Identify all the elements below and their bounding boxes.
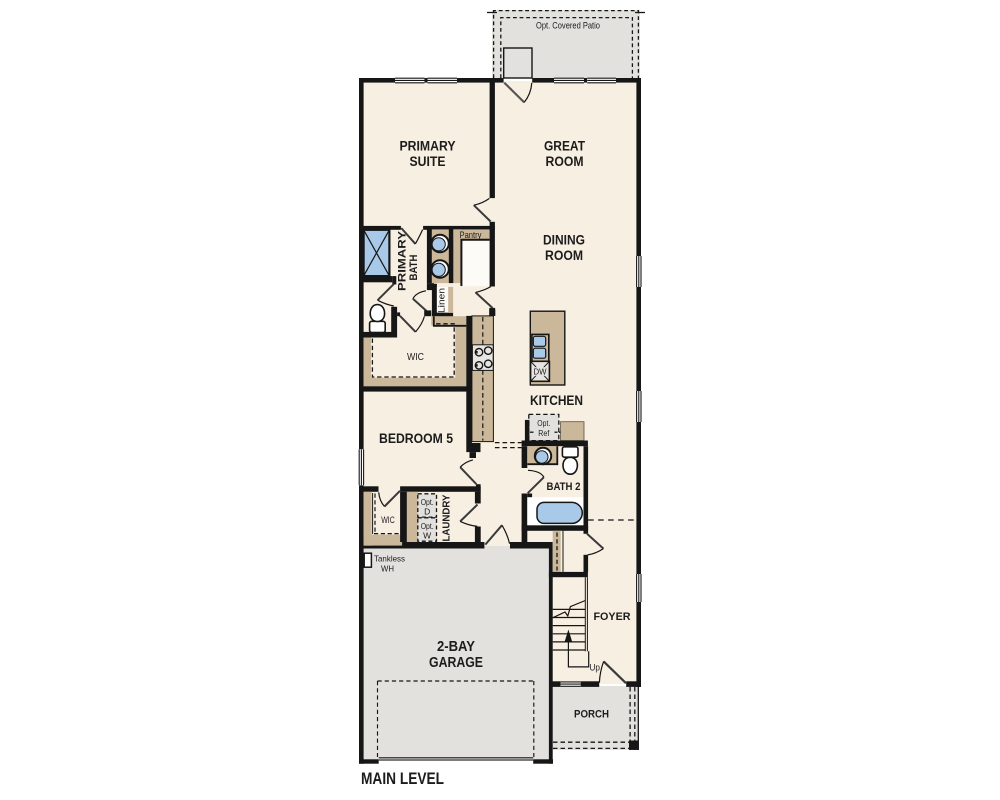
svg-text:Linen: Linen (437, 288, 448, 313)
svg-text:WIC: WIC (407, 352, 424, 363)
svg-text:WIC: WIC (381, 515, 395, 525)
svg-text:PRIMARY: PRIMARY (397, 231, 409, 291)
svg-text:Tankless: Tankless (374, 554, 405, 564)
svg-text:D: D (424, 507, 430, 517)
svg-text:Opt.: Opt. (537, 418, 550, 428)
svg-text:PRIMARY: PRIMARY (400, 139, 456, 154)
svg-text:KITCHEN: KITCHEN (530, 393, 583, 408)
svg-text:DINING: DINING (543, 233, 585, 248)
svg-text:Opt.: Opt. (421, 497, 434, 507)
svg-text:WH: WH (381, 564, 394, 574)
svg-text:Opt.: Opt. (421, 521, 434, 531)
svg-text:Pantry: Pantry (460, 230, 483, 240)
svg-text:ROOM: ROOM (545, 248, 583, 263)
svg-text:2-BAY: 2-BAY (437, 638, 475, 655)
svg-text:Opt. Covered Patio: Opt. Covered Patio (536, 21, 600, 31)
svg-text:Ref: Ref (538, 428, 550, 438)
svg-text:PORCH: PORCH (574, 709, 609, 721)
svg-text:LAUNDRY: LAUNDRY (442, 494, 453, 541)
svg-text:DW: DW (534, 367, 547, 377)
svg-text:Up: Up (590, 663, 601, 674)
svg-text:BATH: BATH (408, 255, 420, 281)
svg-text:MAIN LEVEL: MAIN LEVEL (361, 770, 444, 788)
svg-text:GARAGE: GARAGE (429, 654, 483, 671)
svg-text:W: W (423, 531, 431, 541)
svg-text:BEDROOM 5: BEDROOM 5 (379, 431, 453, 446)
svg-text:SUITE: SUITE (410, 154, 446, 169)
svg-text:GREAT: GREAT (544, 139, 586, 154)
svg-text:BATH 2: BATH 2 (547, 481, 581, 493)
svg-text:FOYER: FOYER (594, 611, 631, 623)
svg-text:ROOM: ROOM (546, 154, 584, 169)
